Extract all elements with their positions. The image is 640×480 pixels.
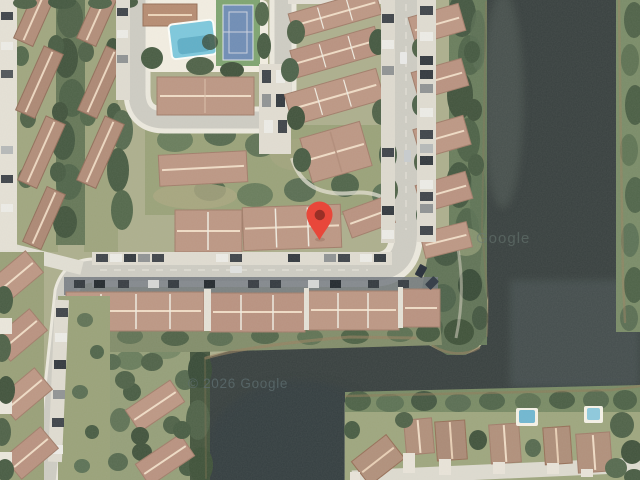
svg-text:Google: Google xyxy=(476,230,530,247)
svg-text:© 2026 Google: © 2026 Google xyxy=(188,376,288,391)
